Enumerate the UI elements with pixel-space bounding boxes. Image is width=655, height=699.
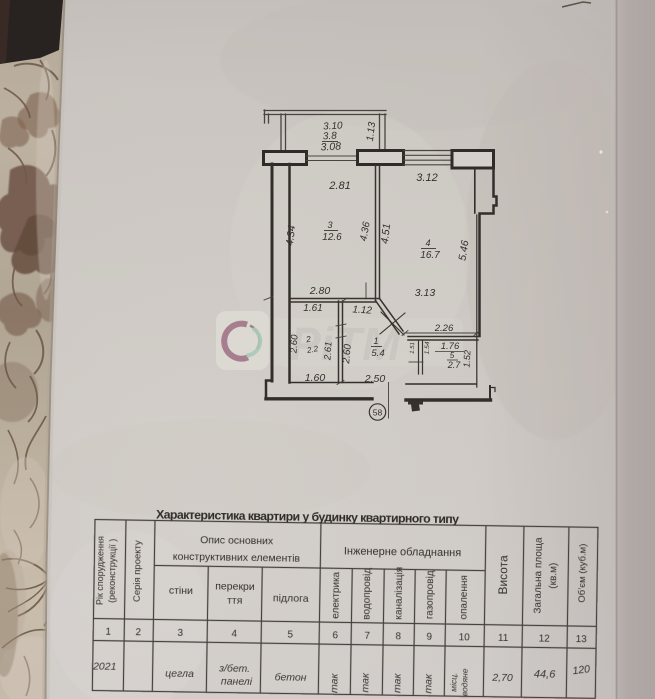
svg-text:9: 9 — [426, 632, 432, 643]
svg-text:2.80: 2.80 — [309, 285, 331, 297]
svg-text:водяне: водяне — [459, 668, 469, 696]
svg-text:2.61: 2.61 — [322, 341, 334, 361]
svg-text:Рік спорудження: Рік спорудження — [95, 536, 106, 605]
svg-text:5: 5 — [287, 630, 293, 641]
svg-text:16.7: 16.7 — [420, 250, 440, 261]
svg-text:3: 3 — [177, 628, 183, 639]
svg-text:Серія проекту: Серія проекту — [132, 540, 144, 602]
svg-text:з/бет.: з/бет. — [218, 662, 250, 675]
svg-text:3.12: 3.12 — [416, 172, 437, 184]
svg-text:44,6: 44,6 — [534, 668, 556, 680]
svg-text:11: 11 — [498, 633, 509, 644]
svg-text:Висота: Висота — [496, 555, 511, 595]
svg-text:2021: 2021 — [92, 660, 117, 672]
svg-text:так: так — [359, 672, 371, 693]
svg-text:3.13: 3.13 — [415, 287, 436, 299]
svg-text:цегла: цегла — [165, 668, 194, 680]
svg-text:бетон: бетон — [275, 671, 307, 684]
svg-text:12.6: 12.6 — [322, 232, 342, 243]
svg-text:13: 13 — [576, 634, 588, 645]
svg-text:4.34: 4.34 — [284, 225, 298, 247]
svg-text:12: 12 — [539, 633, 551, 644]
svg-text:5: 5 — [450, 351, 455, 360]
svg-text:так: так — [391, 672, 403, 693]
svg-text:1.51: 1.51 — [410, 342, 416, 354]
svg-text:Інженерне обладнання: Інженерне обладнання — [344, 545, 462, 559]
svg-text:(кв.м): (кв.м) — [548, 563, 559, 589]
svg-text:опалення: опалення — [458, 575, 470, 620]
svg-text:газопровід: газопровід — [424, 570, 436, 619]
svg-text:1: 1 — [105, 627, 111, 638]
svg-text:2: 2 — [135, 627, 141, 638]
svg-text:ття: ття — [227, 595, 242, 607]
svg-text:2.81: 2.81 — [328, 180, 350, 192]
svg-text:Загальна площа: Загальна площа — [533, 537, 545, 614]
svg-text:так: так — [328, 672, 340, 693]
svg-text:3: 3 — [327, 220, 332, 230]
svg-text:1.52: 1.52 — [462, 350, 473, 368]
svg-text:2.7: 2.7 — [447, 360, 462, 370]
svg-text:1.60: 1.60 — [305, 372, 326, 384]
svg-text:1: 1 — [373, 336, 378, 346]
svg-text:2.60: 2.60 — [341, 343, 354, 365]
svg-text:конструктивних елементів: конструктивних елементів — [173, 551, 301, 565]
svg-text:7: 7 — [364, 631, 370, 642]
svg-text:120: 120 — [572, 663, 591, 677]
svg-text:стіни: стіни — [169, 585, 193, 597]
svg-text:панелі: панелі — [221, 675, 253, 687]
svg-text:Об’єм (куб.м): Об’єм (куб.м) — [577, 544, 589, 603]
svg-text:електрика: електрика — [330, 571, 342, 619]
svg-text:4: 4 — [231, 629, 237, 640]
svg-text:1.54: 1.54 — [424, 341, 431, 354]
svg-text:перекри: перекри — [215, 580, 255, 593]
svg-text:4.51: 4.51 — [379, 223, 393, 245]
svg-text:так: так — [422, 673, 434, 694]
svg-text:4: 4 — [425, 238, 430, 248]
svg-text:(реконструкції ): (реконструкції ) — [107, 539, 118, 603]
svg-text:2,70: 2,70 — [491, 672, 513, 684]
svg-text:каналізація: каналізація — [393, 567, 405, 620]
svg-text:8: 8 — [395, 631, 401, 642]
svg-text:6: 6 — [332, 630, 338, 641]
svg-text:10: 10 — [459, 632, 471, 643]
svg-text:місц.: місц. — [448, 672, 458, 691]
svg-text:водопровід: водопровід — [361, 568, 373, 620]
svg-text:2.60: 2.60 — [288, 334, 300, 355]
svg-text:Опис основних: Опис основних — [200, 534, 274, 547]
svg-text:3.08: 3.08 — [320, 140, 341, 153]
svg-text:2.26: 2.26 — [434, 323, 454, 334]
svg-text:1.12: 1.12 — [352, 304, 373, 316]
svg-text:1.61: 1.61 — [303, 303, 322, 314]
svg-text:58: 58 — [373, 408, 383, 418]
svg-text:2.50: 2.50 — [364, 373, 386, 385]
svg-text:5.4: 5.4 — [371, 348, 384, 359]
svg-text:підлога: підлога — [273, 592, 309, 605]
